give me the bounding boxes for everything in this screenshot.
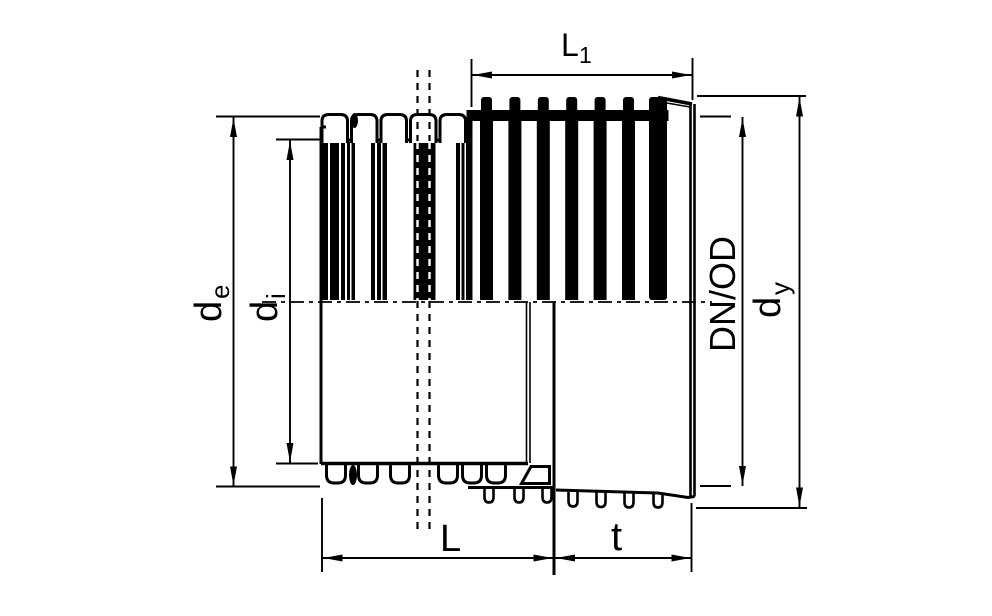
socket-shoulder-detail (522, 467, 550, 484)
bottom-profile (321, 302, 695, 575)
weld-detail-top (351, 113, 358, 128)
dimension-l (322, 498, 554, 572)
weld-detail-bottom (349, 465, 357, 485)
socket-rib-bars (467, 97, 668, 300)
label-l1: L 1 (561, 27, 592, 68)
corrugation-left-section (321, 113, 473, 464)
label-de-sub: e (205, 285, 235, 299)
label-dnod-text: DN/OD (702, 236, 743, 352)
pipe-socket-technical-drawing: L 1 d e d i DN/OD d y L t (0, 0, 992, 616)
corrugation-wall-stripes (322, 142, 473, 300)
label-dnod: DN/OD (702, 236, 743, 352)
label-de: d e (188, 285, 235, 322)
inserted-pipe-end-line (527, 302, 531, 463)
label-l1-sub: 1 (579, 42, 592, 68)
socket-bottom-ribs-left (485, 488, 552, 503)
socket-section (467, 97, 695, 497)
label-dy: d y (747, 282, 795, 318)
corrugation-crests (322, 113, 468, 143)
label-dy-sub: y (765, 282, 795, 295)
label-di-base: d (244, 301, 286, 322)
socket-mouth-edge (691, 104, 695, 497)
label-de-base: d (188, 301, 230, 322)
label-di-sub: i (261, 293, 291, 299)
label-di: d i (244, 293, 291, 322)
label-t: t (611, 515, 622, 559)
diagram-canvas: L 1 d e d i DN/OD d y L t (0, 0, 992, 616)
label-l1-base: L (561, 27, 579, 63)
socket-bottom-ribs-right (569, 492, 663, 508)
dimension-t (555, 503, 692, 572)
label-dy-base: d (747, 297, 789, 318)
label-l: L (440, 518, 461, 560)
